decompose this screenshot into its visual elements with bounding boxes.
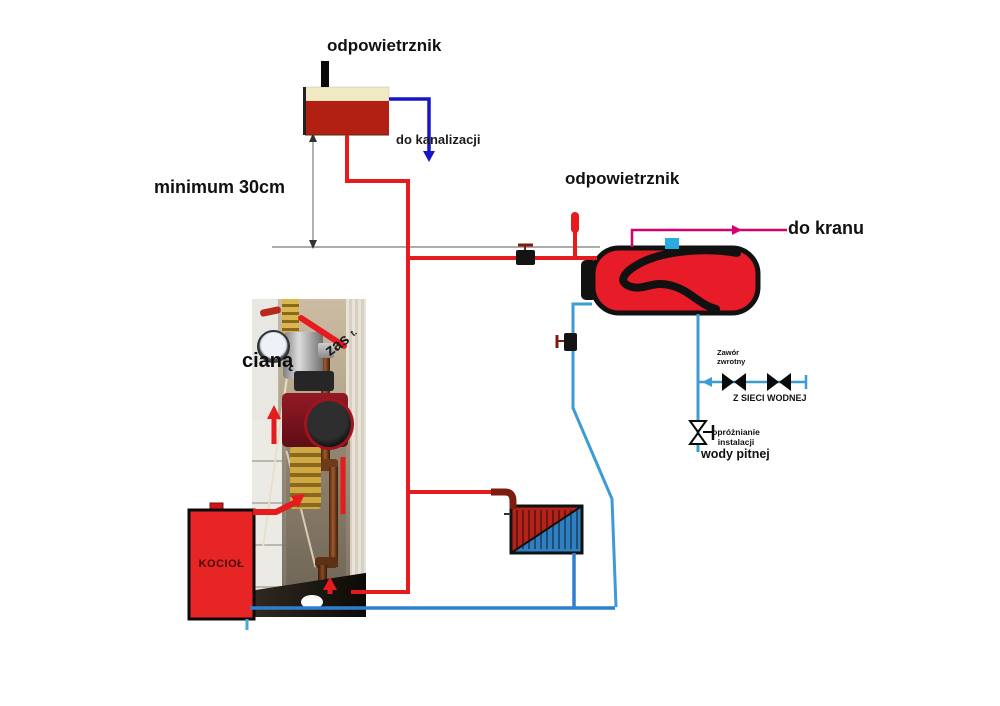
- expansion-tank: [303, 61, 389, 135]
- label-to-sewer: do kanalizacji: [396, 133, 481, 147]
- check-valve-left-wing: [722, 373, 734, 391]
- radiator-inlet-elbow: [491, 492, 513, 509]
- sewer-arrow-down: [423, 151, 435, 162]
- mains-arrow-left: [702, 377, 712, 387]
- ball-valve-return-body: [564, 333, 577, 351]
- dimension-lines: [272, 133, 600, 249]
- label-boiler: KOCIOŁ: [189, 510, 254, 619]
- cold-water-circuit: [573, 304, 806, 607]
- sewer-pipe: [389, 99, 435, 162]
- drain-valve-top-wing: [690, 421, 706, 432]
- hot-pipe-main: [347, 135, 408, 592]
- label-drain: opróżnianie instalacji: [706, 428, 766, 447]
- ball-valve-hot-body: [516, 250, 535, 265]
- label-drain-bold: wody pitnej: [701, 448, 770, 462]
- diagram-lines: [0, 0, 1000, 706]
- dhw-return-pipe: [573, 304, 616, 607]
- tap-pipe-line: [632, 230, 787, 247]
- label-water-mains: Z SIECI WODNEJ: [733, 394, 807, 404]
- photo-return-arrow-head: [323, 577, 337, 590]
- tap-pipe: [632, 225, 787, 247]
- dhw-tank-body: [593, 248, 758, 313]
- label-min-height: minimum 30cm: [154, 178, 285, 198]
- label-air-vent-tank: odpowietrznik: [565, 170, 679, 189]
- radiator: [504, 506, 582, 553]
- label-photo-wall: cianą: [242, 350, 293, 372]
- air-vent-pipe-stub: [321, 61, 329, 87]
- dhw-tank: [581, 238, 758, 313]
- tap-arrow-right: [732, 225, 742, 235]
- label-check-valve: Zawór zwrotny: [717, 349, 745, 366]
- dhw-top-inlet: [665, 238, 679, 249]
- check-valve-right-wing: [734, 373, 746, 391]
- expansion-tank-water: [305, 101, 389, 135]
- expansion-tank-left-wall: [303, 87, 306, 135]
- photo-flow-arrow-head: [267, 405, 281, 419]
- shutoff-valve-left-wing: [767, 373, 779, 391]
- label-air-vent-top: odpowietrznik: [327, 37, 441, 56]
- plumbing-diagram: odpowietrznik do kanalizacji minimum 30c…: [0, 0, 1000, 706]
- expansion-tank-air-space: [305, 87, 389, 101]
- drain-valve-bottom-wing: [690, 433, 706, 444]
- boiler-supply-pipe: [253, 502, 296, 512]
- shutoff-valve-right-wing: [779, 373, 791, 391]
- label-to-tap: do kranu: [788, 219, 864, 239]
